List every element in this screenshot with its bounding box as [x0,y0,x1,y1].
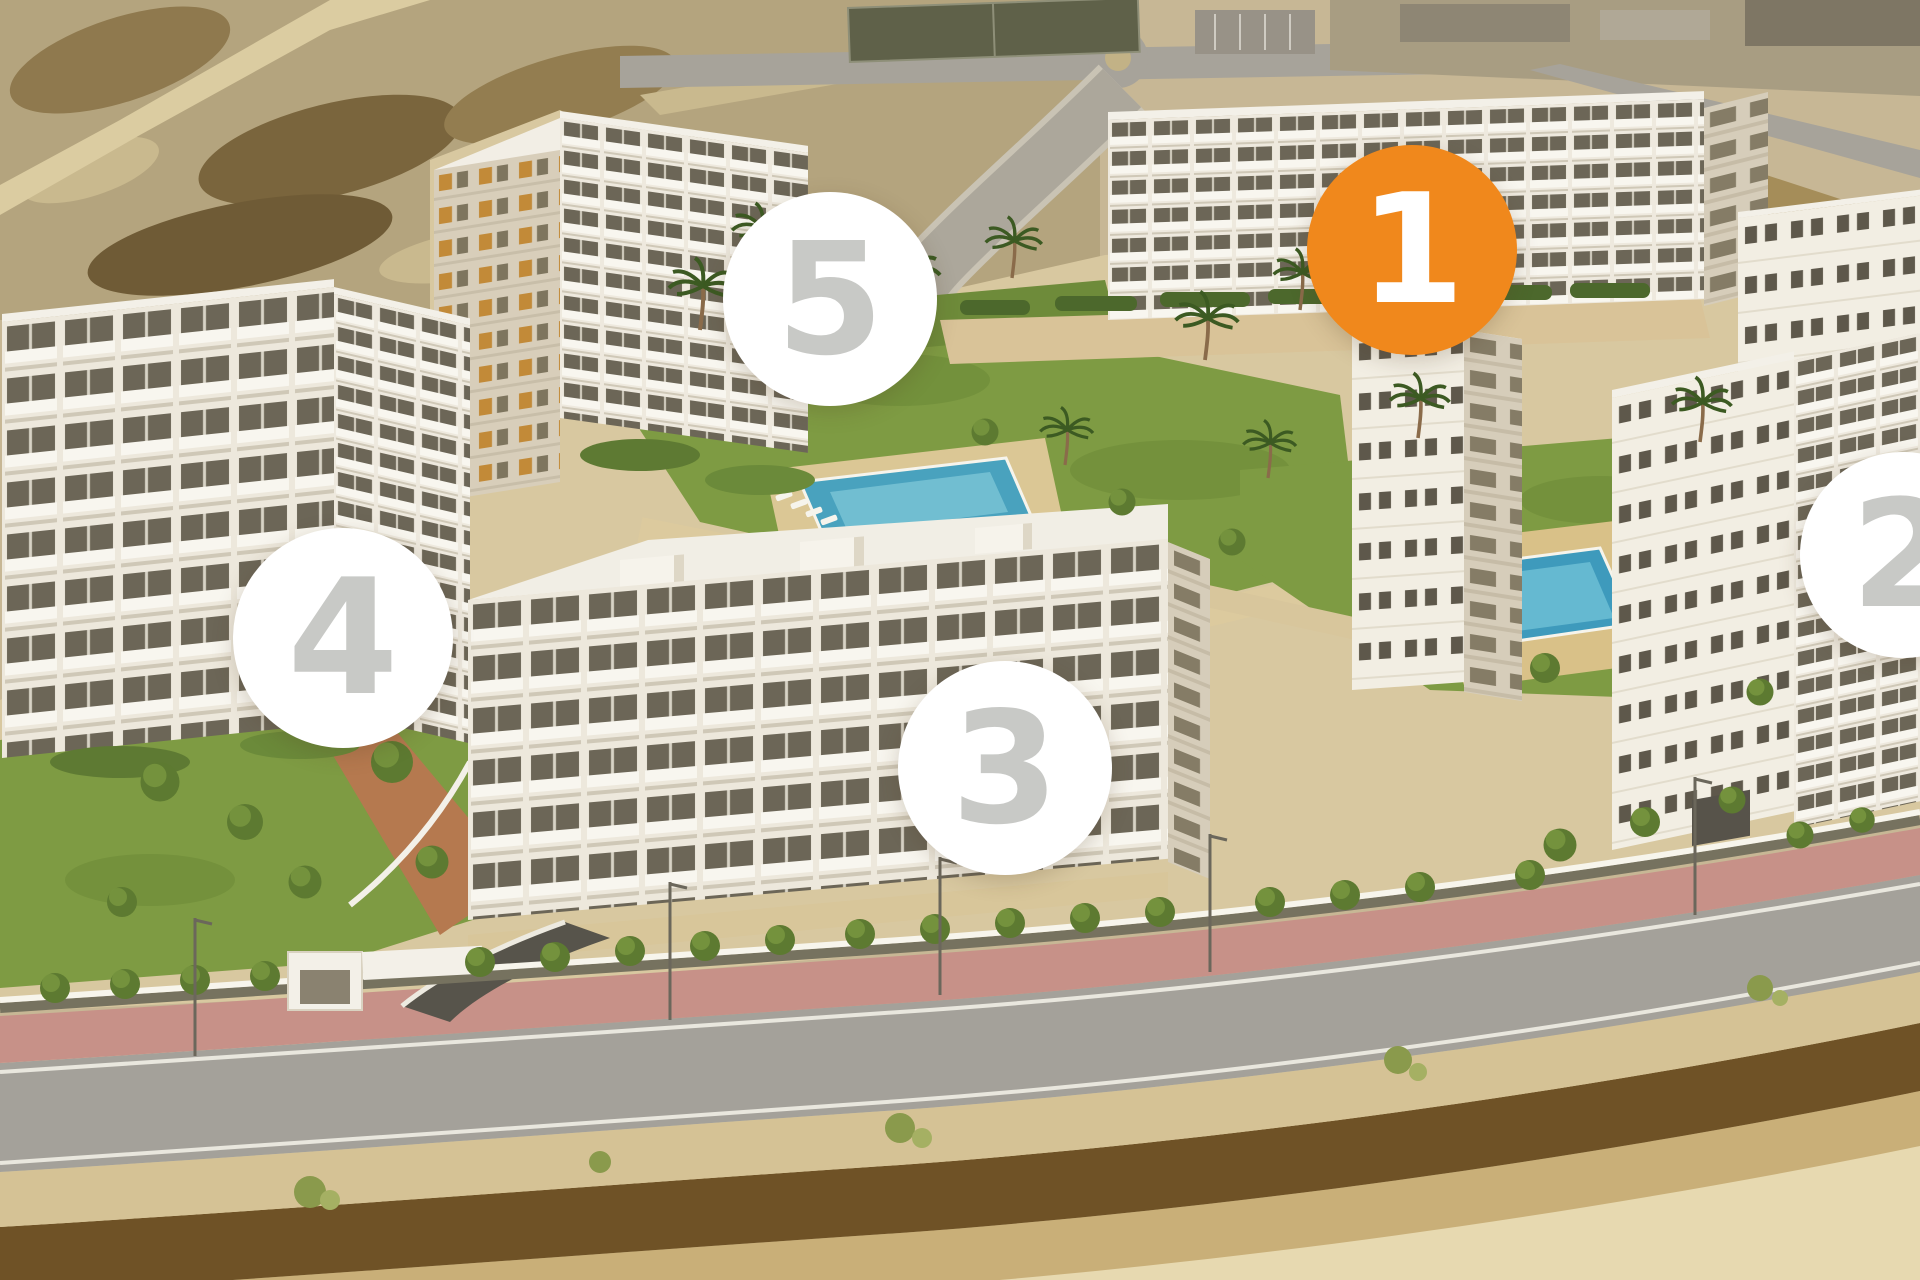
site-plan-render: 12345 [0,0,1920,1280]
tower-block [1352,326,1522,701]
building-marker-4[interactable]: 4 [233,528,453,748]
sports-pitch [848,0,1140,62]
parking-lot [1195,10,1315,54]
building-marker-5[interactable]: 5 [723,192,937,406]
building-marker-3[interactable]: 3 [898,661,1112,875]
building-marker-1[interactable]: 1 [1307,145,1517,355]
